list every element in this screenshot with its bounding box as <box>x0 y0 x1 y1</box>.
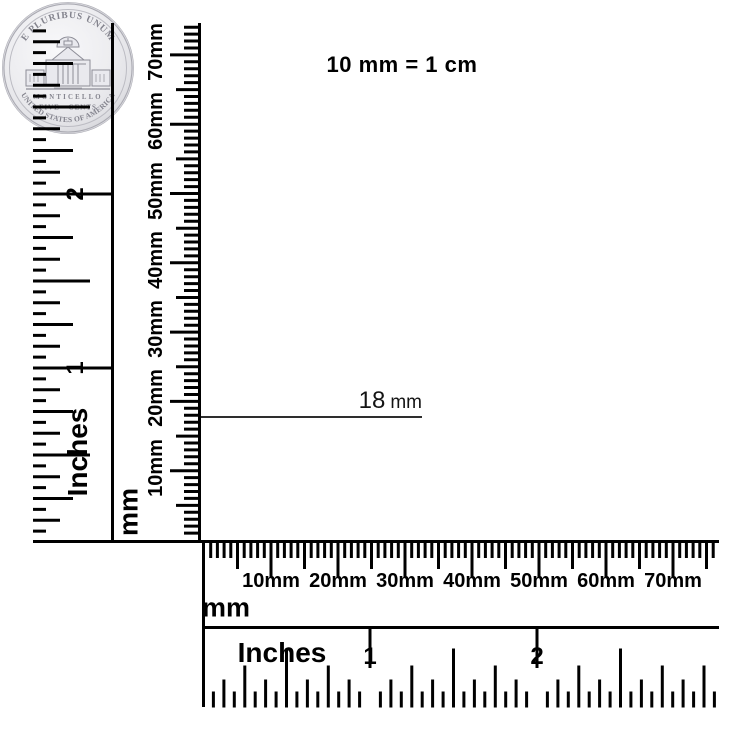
tick-marks <box>33 31 113 531</box>
ruler-left-inches-ticks <box>33 31 113 531</box>
product-measurement-image: 10 mm = 1 cm <box>0 0 737 737</box>
ruler-bottom-mm-ticks <box>211 542 714 579</box>
ruler-frame-lines <box>33 23 719 707</box>
measurement-annotation: 18 mm <box>359 387 422 415</box>
ruler-layer <box>0 0 737 737</box>
tick-marks <box>213 628 714 708</box>
ruler-left-mm-ticks <box>170 27 200 533</box>
tick-marks <box>211 542 714 579</box>
ruler-bottom-inches-ticks <box>213 628 714 708</box>
measurement-unit: mm <box>390 392 422 414</box>
tick-marks <box>170 27 200 533</box>
measurement-value: 18 <box>359 387 386 415</box>
